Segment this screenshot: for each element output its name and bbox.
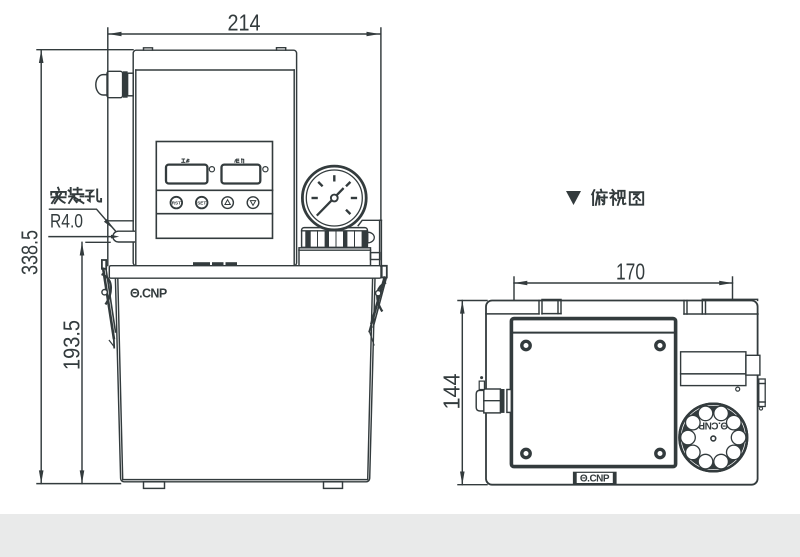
svg-text:144: 144 bbox=[439, 373, 465, 409]
svg-text:214: 214 bbox=[228, 10, 261, 36]
svg-text:RST: RST bbox=[172, 200, 181, 205]
svg-text:Θ.CNP: Θ.CNP bbox=[580, 474, 610, 485]
svg-text:Θ.CNP: Θ.CNP bbox=[698, 420, 728, 431]
svg-text:R4.0: R4.0 bbox=[50, 212, 83, 233]
svg-text:Θ.CNP: Θ.CNP bbox=[130, 287, 167, 301]
svg-text:193.5: 193.5 bbox=[59, 320, 85, 370]
svg-text:338.5: 338.5 bbox=[17, 230, 43, 275]
svg-text:SET: SET bbox=[197, 200, 206, 205]
svg-text:170: 170 bbox=[616, 259, 645, 285]
